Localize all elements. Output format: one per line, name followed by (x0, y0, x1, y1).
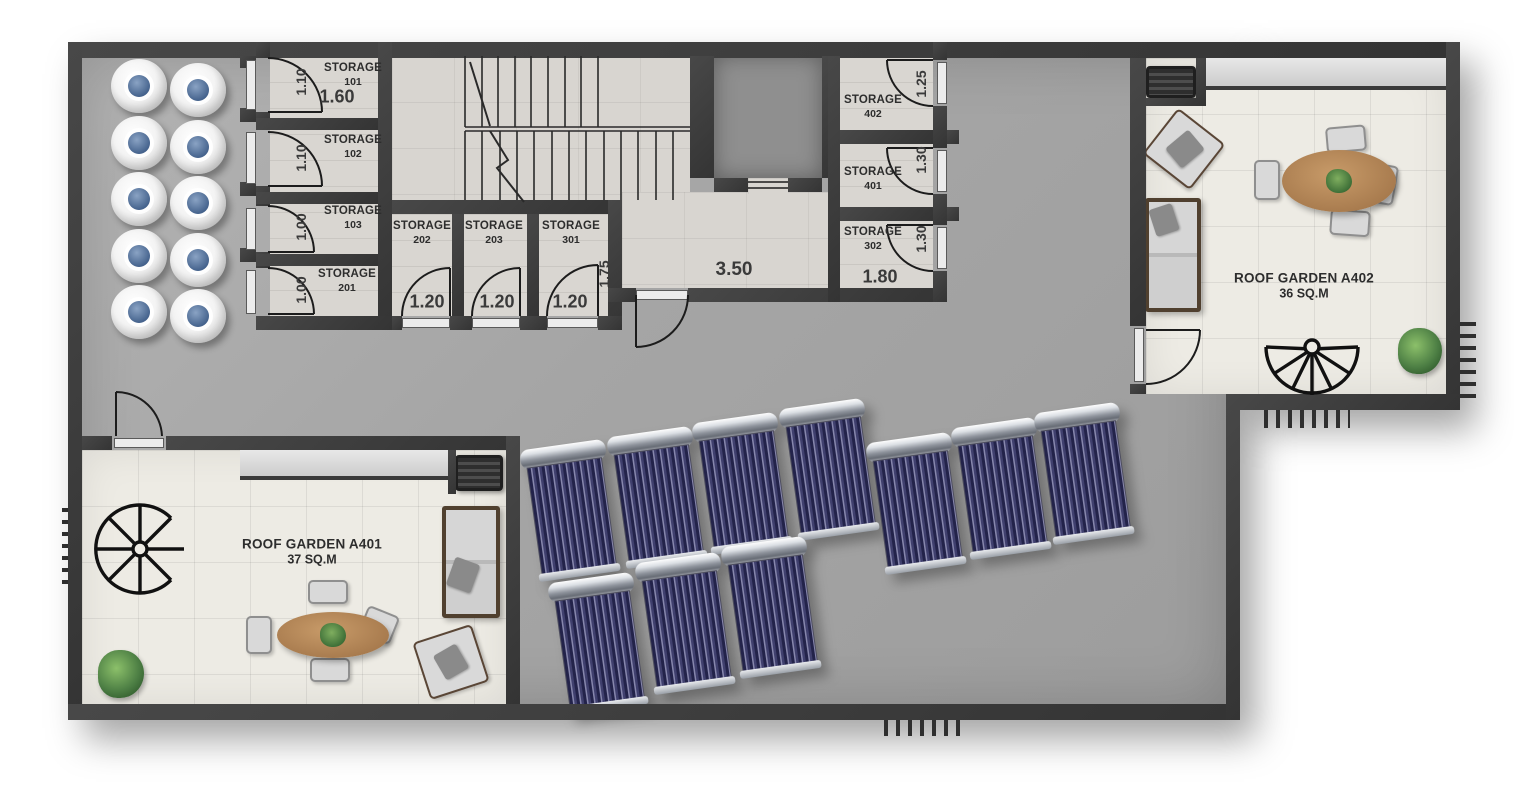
storage-201-label: STORAGE 201 (318, 268, 376, 294)
door-sill (937, 150, 947, 192)
storage-302-door-dim: 1.30 (913, 225, 929, 252)
wall-segment (506, 436, 520, 704)
wall-segment (82, 436, 112, 450)
water-tank (111, 285, 167, 339)
wall-segment (392, 200, 622, 214)
door-sill (472, 318, 520, 328)
wall-segment (256, 42, 270, 58)
wall-segment (240, 248, 256, 262)
door-sill (636, 290, 688, 300)
wall-segment (256, 192, 378, 204)
storage-102-label: STORAGE 102 (324, 134, 382, 160)
storage-402-label: STORAGE 402 (844, 94, 902, 120)
storage-203-door-dim: 1.20 (479, 292, 514, 313)
roof-garden-a401-label: ROOF GARDEN A401 37 SQ.M (242, 536, 382, 567)
storage-401-door-dim: 1.30 (913, 146, 929, 173)
water-tank (170, 63, 226, 117)
wall-segment (933, 42, 947, 60)
storage-102-door-dim: 1.10 (293, 144, 309, 171)
wall-segment (598, 316, 622, 330)
water-tank (111, 229, 167, 283)
storage-202-label: STORAGE 202 (393, 220, 451, 246)
wall-segment (933, 106, 947, 148)
elevator-shaft (714, 56, 822, 178)
door-sill (246, 208, 256, 250)
water-tank (170, 289, 226, 343)
dining-table (277, 612, 389, 658)
wall-segment (840, 130, 933, 144)
storage-101-width-dim: 1.60 (319, 87, 354, 108)
wall-segment (788, 178, 822, 192)
water-tank (111, 59, 167, 113)
water-tank (170, 120, 226, 174)
dining-chair (246, 616, 272, 654)
wall-segment (68, 42, 82, 720)
roof-garden-a402-label: ROOF GARDEN A402 36 SQ.M (1234, 270, 1374, 301)
solar-collector (1033, 402, 1137, 547)
ac-unit-a402 (1146, 66, 1196, 98)
wall-segment (1226, 394, 1240, 720)
storage-103-label: STORAGE 103 (324, 205, 382, 231)
wall-segment (448, 450, 456, 494)
wall-segment (947, 207, 959, 221)
storage-301-depth-dim: 1.75 (596, 260, 612, 287)
wall-segment (933, 194, 947, 225)
water-tank (170, 176, 226, 230)
wall-segment (1446, 42, 1460, 410)
storage-401-label: STORAGE 401 (844, 166, 902, 192)
door-sill (114, 438, 164, 448)
wall-segment (933, 271, 947, 302)
wall-segment (450, 316, 472, 330)
wall-segment (256, 118, 378, 130)
wall-segment (392, 316, 402, 330)
storage-203-label: STORAGE 203 (465, 220, 523, 246)
wall-segment (714, 178, 748, 192)
wall-segment (1130, 58, 1146, 326)
storage-302-width-dim: 1.80 (862, 267, 897, 288)
a401-canopy-strip (240, 450, 450, 480)
water-tank (170, 233, 226, 287)
dining-chair (310, 658, 350, 682)
wall-segment (68, 42, 1460, 58)
water-tank (111, 172, 167, 226)
door-sill (246, 60, 256, 110)
storage-101-label: STORAGE 101 (324, 62, 382, 88)
wall-segment (1226, 394, 1460, 410)
wall-segment (688, 288, 947, 302)
storage-302-label: STORAGE 302 (844, 226, 902, 252)
louver-mark-a402-right (1460, 322, 1476, 400)
wall-segment (828, 56, 840, 302)
wall-segment (68, 704, 1240, 720)
wall-segment (840, 207, 933, 221)
louver-mark-a402-bottom (1264, 410, 1350, 428)
door-sill (1134, 328, 1144, 382)
wall-segment (240, 182, 256, 196)
door-sill (937, 62, 947, 104)
door-sill (937, 227, 947, 269)
door-sill (402, 318, 450, 328)
ac-unit-a401 (455, 455, 503, 491)
floor-plan: STORAGE 101 1.60 1.10 STORAGE 102 1.10 S… (0, 0, 1514, 807)
wall-segment (527, 214, 539, 316)
solar-collector (519, 439, 623, 584)
elevator-lobby-floor (748, 178, 788, 194)
dining-chair (308, 580, 348, 604)
solar-collector (691, 412, 795, 557)
door-sill (246, 270, 256, 314)
corridor-width-dim: 3.50 (716, 259, 753, 281)
solar-collector (778, 398, 882, 543)
dining-table (1282, 150, 1396, 212)
solar-collector (634, 552, 738, 697)
wall-segment (452, 214, 464, 316)
wall-segment (256, 316, 392, 330)
storage-301-label: STORAGE 301 (542, 220, 600, 246)
solar-collector (720, 536, 824, 681)
wall-segment (166, 436, 520, 450)
stair-hall-floor (392, 56, 690, 202)
storage-301-door-dim: 1.20 (552, 292, 587, 313)
louver-mark-bottom (884, 720, 964, 736)
wall-segment (520, 316, 547, 330)
water-tank (111, 116, 167, 170)
storage-101-door-dim: 1.10 (293, 68, 309, 95)
wall-segment (608, 288, 636, 302)
wall-segment (1146, 98, 1206, 106)
storage-402-door-dim: 1.25 (913, 70, 929, 97)
storage-103-door-dim: 1.00 (293, 213, 309, 240)
dining-chair (1329, 209, 1371, 238)
dining-chair (1254, 160, 1280, 200)
wall-segment (240, 108, 256, 122)
storage-202-door-dim: 1.20 (409, 292, 444, 313)
door-sill (246, 132, 256, 184)
wall-segment (256, 254, 378, 266)
wall-segment (1130, 384, 1146, 394)
storage-201-door-dim: 1.00 (293, 276, 309, 303)
a402-canopy-strip (1206, 58, 1446, 90)
solar-collector (547, 572, 651, 717)
door-sill (547, 318, 598, 328)
wall-segment (690, 56, 714, 178)
wall-segment (947, 130, 959, 144)
